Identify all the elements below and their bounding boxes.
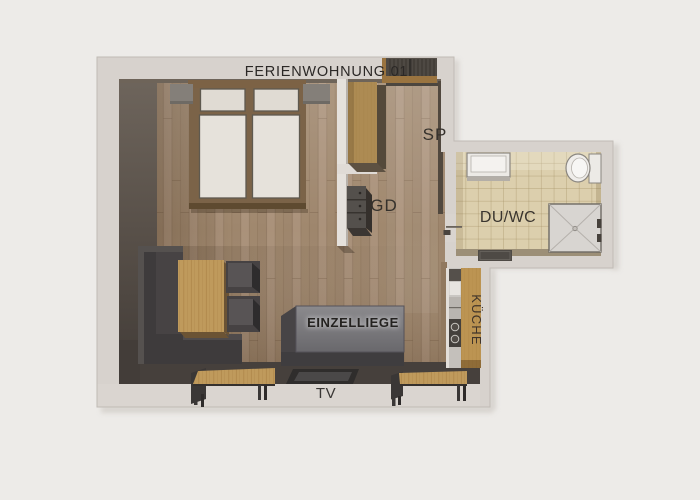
svg-text:DU/WC: DU/WC <box>480 209 536 226</box>
svg-text:FERIENWOHNUNG 01: FERIENWOHNUNG 01 <box>245 64 408 80</box>
svg-text:SP: SP <box>423 125 448 144</box>
svg-text:EINZELLIEGE: EINZELLIEGE <box>307 315 399 330</box>
svg-text:TV: TV <box>316 385 336 402</box>
svg-text:KÜCHE: KÜCHE <box>469 294 484 346</box>
svg-text:GD: GD <box>370 196 398 215</box>
